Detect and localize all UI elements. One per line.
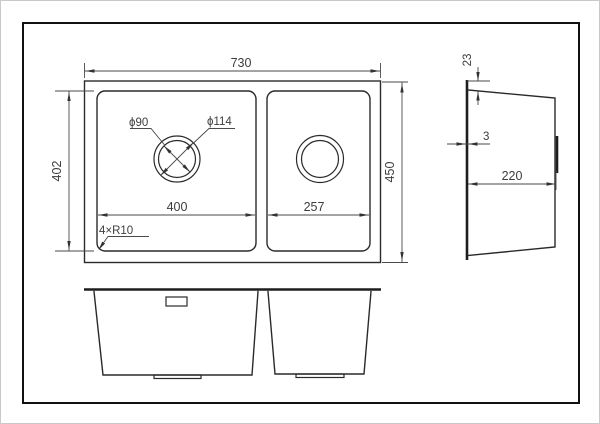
overflow-hole <box>166 297 187 306</box>
drawing-sheet: ϕ90 ϕ114 4×R10 730 4 <box>1 1 600 424</box>
left-bowl-front <box>94 292 258 376</box>
right-bowl-front <box>268 292 371 375</box>
inner-depth-label: 402 <box>50 161 64 182</box>
left-drain-recess <box>154 375 201 379</box>
wall-thickness-label: 3 <box>483 131 489 143</box>
right-drain-flange <box>297 136 344 183</box>
sink-technical-drawing: ϕ90 ϕ114 4×R10 730 4 <box>0 0 600 424</box>
rim-height-label: 23 <box>462 54 474 67</box>
dim-rim-height <box>467 67 490 105</box>
corner-radius-leader <box>97 237 149 251</box>
drawing-frame <box>23 23 579 403</box>
bowl-depth-label: 220 <box>502 169 523 183</box>
right-bowl-width-label: 257 <box>304 200 325 214</box>
front-view <box>84 290 381 379</box>
drain-diameter-dimension-lines <box>130 129 235 177</box>
left-bowl-width-label: 400 <box>167 200 188 214</box>
overall-depth-label: 450 <box>383 162 397 183</box>
right-drain-recess <box>296 374 344 378</box>
corner-radius-label: 4×R10 <box>99 225 133 237</box>
drain-hole-diameter-label: ϕ90 <box>129 117 148 129</box>
drain-flange-diameter-label: ϕ114 <box>207 116 232 128</box>
overall-width-label: 730 <box>231 56 252 70</box>
right-bowl-outline <box>267 91 370 251</box>
top-view: ϕ90 ϕ114 4×R10 730 4 <box>50 56 408 263</box>
right-drain-hole <box>302 141 339 178</box>
side-view: 23 3 220 <box>447 54 557 260</box>
